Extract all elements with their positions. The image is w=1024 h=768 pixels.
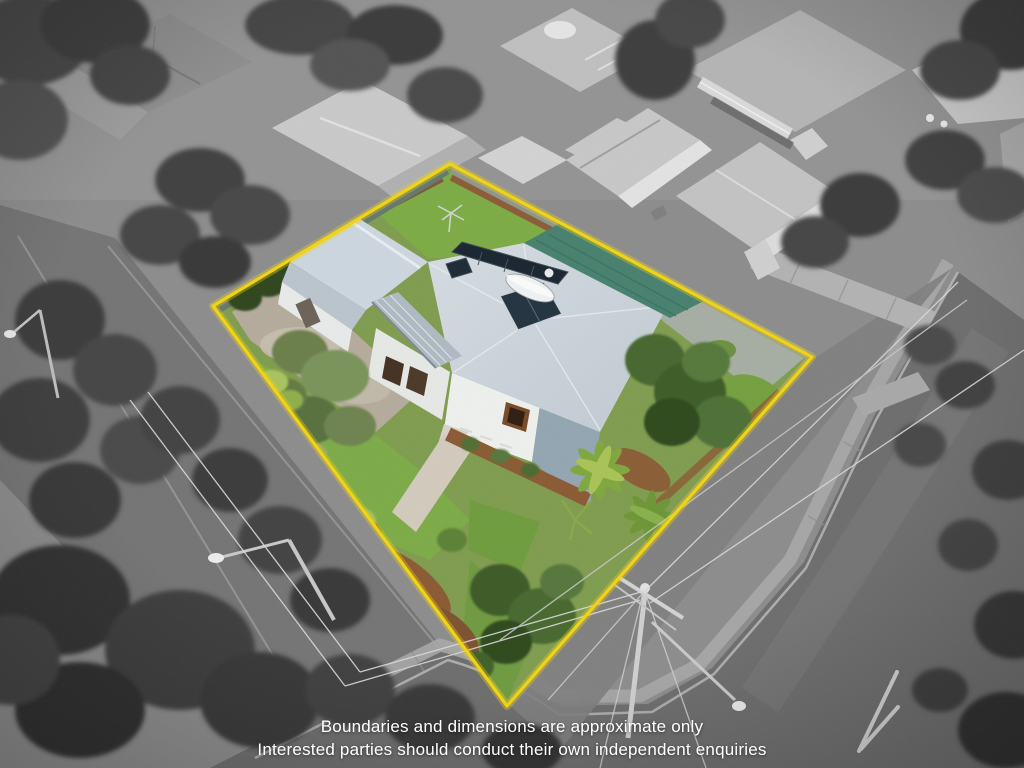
disclaimer-line-2: Interested parties should conduct their … <box>0 738 1024 761</box>
scene <box>0 0 1024 768</box>
disclaimer-caption: Boundaries and dimensions are approximat… <box>0 715 1024 761</box>
film-grain <box>0 0 1024 768</box>
aerial-photo: Boundaries and dimensions are approximat… <box>0 0 1024 768</box>
disclaimer-line-1: Boundaries and dimensions are approximat… <box>0 715 1024 738</box>
